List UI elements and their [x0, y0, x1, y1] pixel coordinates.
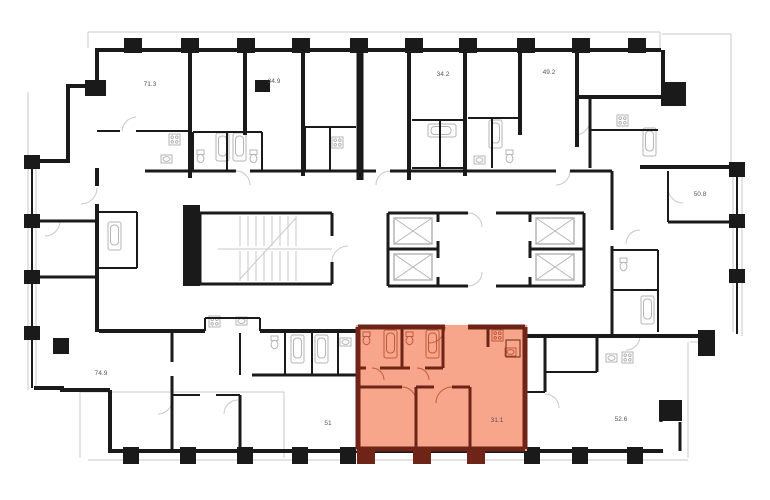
area-label-49-2: 49.2 — [543, 69, 556, 76]
area-label-71-3: 71.3 — [144, 81, 157, 88]
area-label-51: 51 — [324, 420, 332, 427]
floor-plan-canvas: 71.3 34.9 34.2 49.2 50.8 74.9 51 31.1 52… — [0, 0, 770, 500]
area-label-34-9: 34.9 — [268, 78, 281, 85]
elevator-car — [536, 218, 574, 244]
area-label-31-1: 31.1 — [491, 417, 504, 424]
area-label-50-8: 50.8 — [694, 191, 707, 198]
elevator-car — [394, 254, 432, 280]
area-label-34-2: 34.2 — [437, 71, 450, 78]
area-label-74-9: 74.9 — [95, 370, 108, 377]
highlighted-apartment — [356, 325, 527, 464]
elevator-car — [536, 254, 574, 280]
staircase — [218, 216, 332, 281]
elevator-car — [394, 218, 432, 244]
area-label-52-6: 52.6 — [615, 416, 628, 423]
